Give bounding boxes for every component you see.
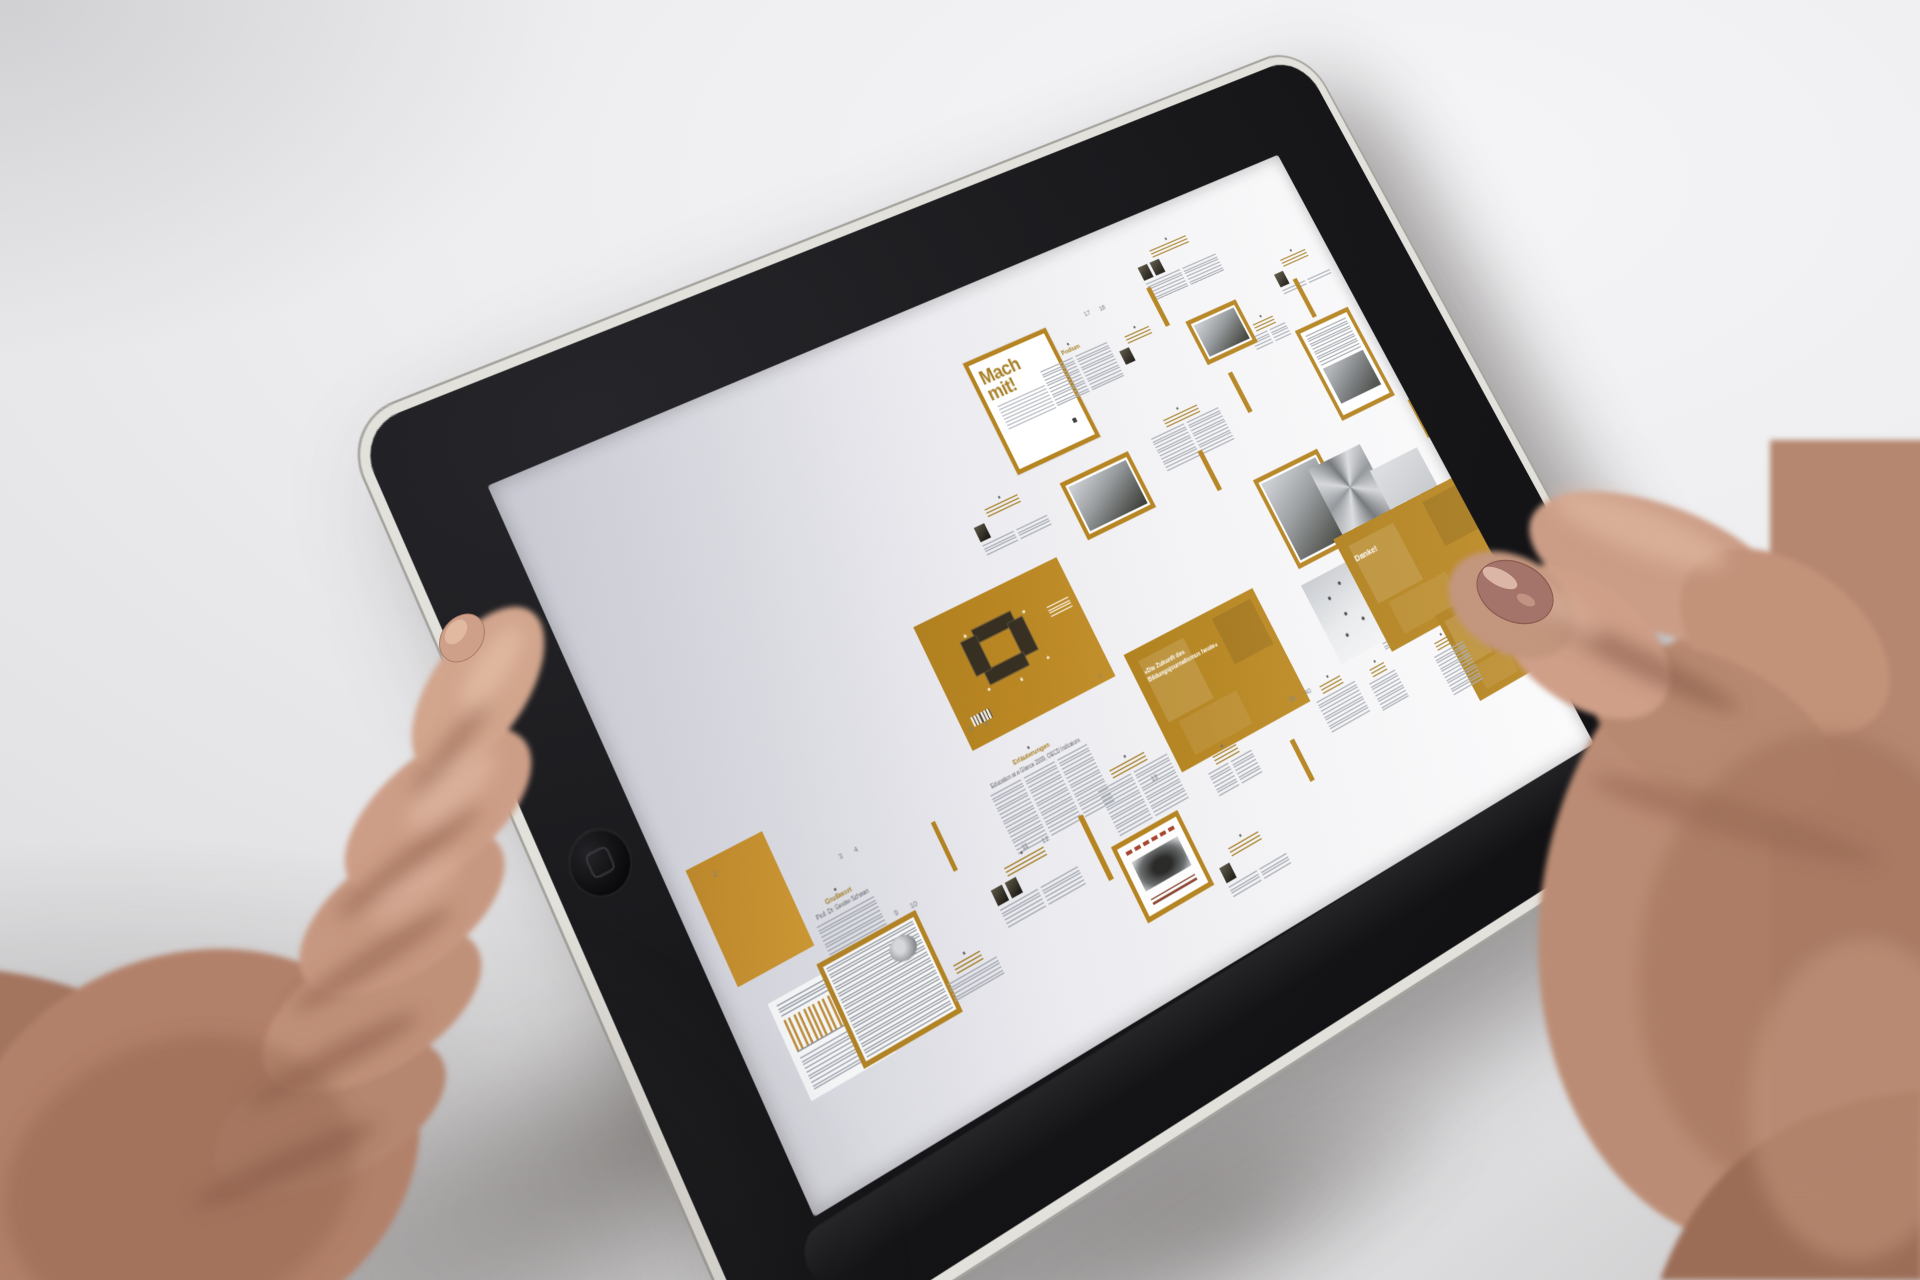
- left-hand: [0, 540, 840, 1280]
- photo-scene: Mach mit!Podium»Die Zukunft des Bildungs…: [0, 0, 1920, 1280]
- right-hand: [1340, 400, 1920, 1280]
